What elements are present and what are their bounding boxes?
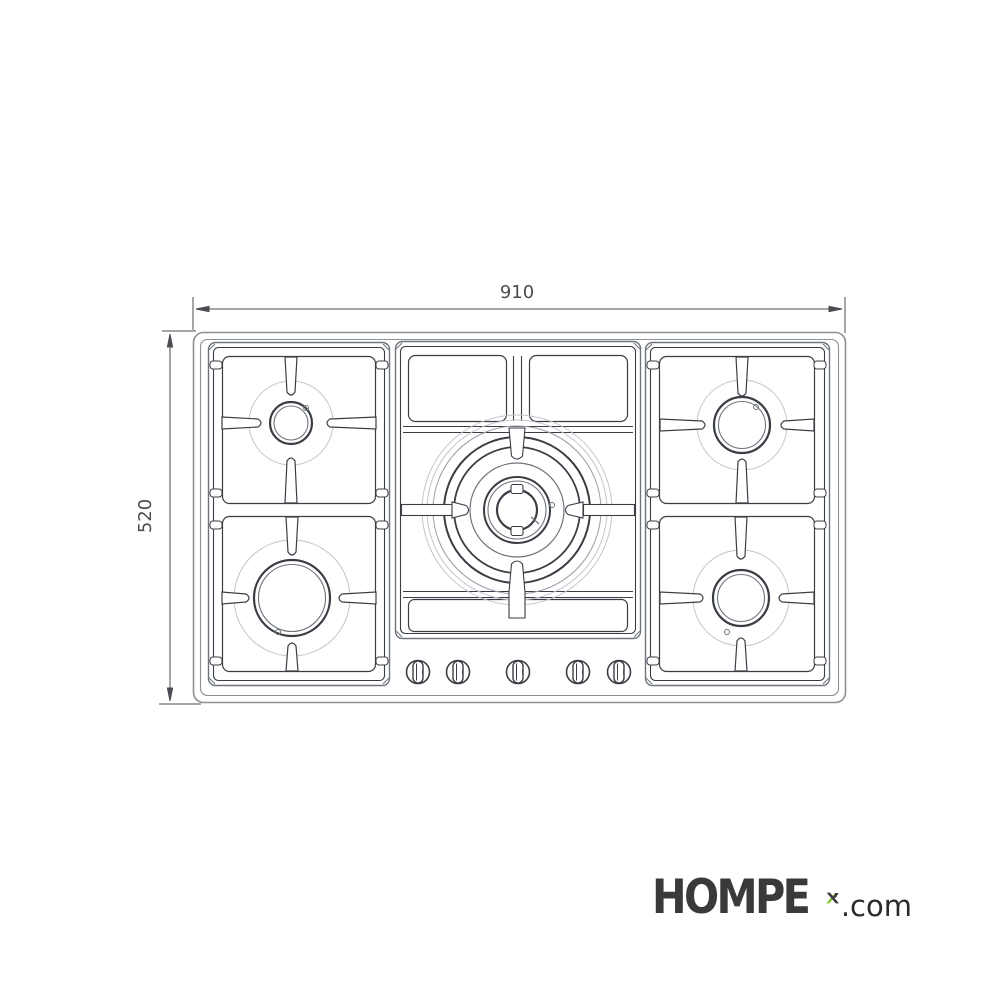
pan-support-fingers bbox=[660, 357, 814, 503]
technical-drawing: 910 520 bbox=[0, 0, 1000, 1000]
pan-support-cell bbox=[223, 357, 376, 504]
pan-support-fingers bbox=[222, 357, 376, 503]
dimension-width: 910 bbox=[193, 282, 845, 333]
arrowhead-up bbox=[167, 334, 172, 347]
logo-brand-text: HOMPE bbox=[652, 879, 808, 918]
logo-x-mark bbox=[826, 878, 839, 918]
width-dimension-label: 910 bbox=[500, 282, 534, 303]
control-knobs bbox=[407, 661, 631, 684]
burner-bottom-right bbox=[660, 517, 814, 671]
left-panel bbox=[209, 343, 390, 686]
cap-notch bbox=[511, 527, 523, 536]
igniter-dot bbox=[725, 630, 730, 635]
control-knob-1 bbox=[407, 661, 430, 684]
corner-tabs bbox=[210, 361, 388, 665]
control-knob-4 bbox=[567, 661, 590, 684]
burner-top-left bbox=[222, 357, 376, 503]
arrowhead-down bbox=[167, 688, 172, 701]
burner-center-wok bbox=[402, 415, 635, 618]
logo-domain-suffix: .com bbox=[841, 895, 912, 918]
right-panel bbox=[646, 343, 830, 686]
control-knob-2 bbox=[447, 661, 470, 684]
control-knob-3 bbox=[507, 661, 530, 684]
corner-tabs bbox=[647, 361, 826, 665]
height-dimension-label: 520 bbox=[135, 499, 156, 533]
logo: HOMPE .com bbox=[652, 868, 912, 918]
burner-top-right bbox=[660, 357, 814, 503]
pan-support-cell bbox=[530, 356, 628, 422]
control-knob-5 bbox=[608, 661, 631, 684]
burner-bottom-left bbox=[222, 517, 376, 671]
pan-support-fingers bbox=[660, 517, 814, 671]
dimension-height: 520 bbox=[135, 331, 201, 704]
arrowhead-right bbox=[829, 306, 842, 311]
cap-notch bbox=[511, 485, 523, 494]
pan-support-cell bbox=[409, 356, 507, 422]
arrowhead-left bbox=[196, 306, 209, 311]
